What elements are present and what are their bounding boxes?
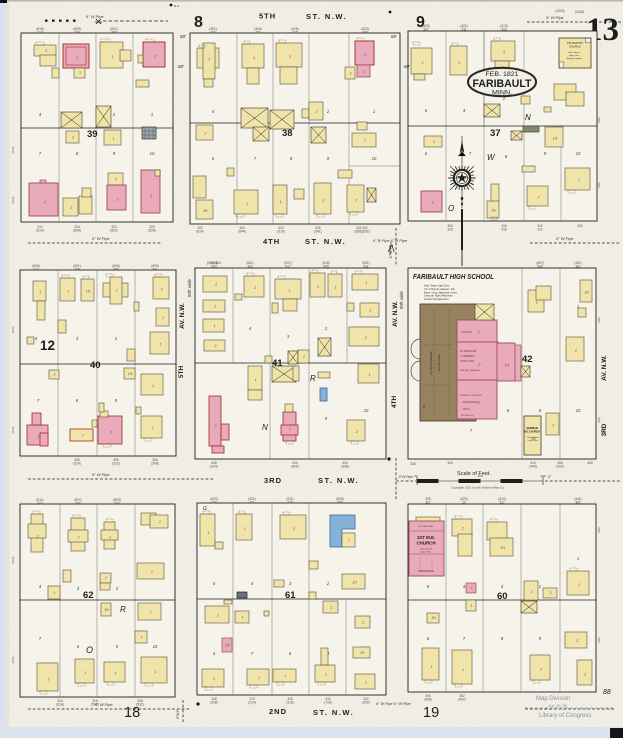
svg-text:301: 301 <box>152 268 158 272</box>
svg-text:6" W Pipe: 6" W Pipe <box>86 14 104 19</box>
svg-text:2: 2 <box>329 605 332 609</box>
svg-text:1: 1 <box>207 531 209 535</box>
svg-text:1: 1 <box>67 289 69 293</box>
svg-text:5TH: 5TH <box>259 12 276 21</box>
svg-text:Heat: Steam: Heat: Steam <box>420 548 432 551</box>
svg-text:1½: 1½ <box>203 209 208 213</box>
svg-text:2: 2 <box>75 56 78 60</box>
svg-text:324: 324 <box>577 224 583 228</box>
svg-text:SHOP: SHOP <box>463 409 470 411</box>
svg-text:AV. N.W.: AV. N.W. <box>601 355 608 381</box>
svg-text:(312): (312) <box>11 146 15 153</box>
svg-text:PARSONAGE: PARSONAGE <box>418 570 434 573</box>
svg-text:2: 2 <box>245 202 248 206</box>
svg-text:403: 403 <box>362 31 368 35</box>
svg-text:MUSIC ROOM: MUSIC ROOM <box>463 402 478 404</box>
svg-text:2: 2 <box>363 139 366 143</box>
svg-text:(542): (542) <box>91 703 98 707</box>
svg-text:80ft wide: 80ft wide <box>399 290 404 309</box>
svg-text:BOILER Rm: BOILER Rm <box>461 415 473 417</box>
svg-text:(60): (60) <box>597 317 601 322</box>
svg-text:1: 1 <box>430 665 432 669</box>
svg-text:AV. N.W.: AV. N.W. <box>392 301 399 327</box>
svg-text:D.H.: D.H. <box>174 4 180 8</box>
svg-text:1: 1 <box>214 324 216 328</box>
svg-text:1: 1 <box>54 591 56 595</box>
svg-text:4TH: 4TH <box>391 396 398 409</box>
svg-text:2: 2 <box>478 363 481 367</box>
svg-text:340': 340' <box>410 462 417 466</box>
svg-text:2: 2 <box>431 201 434 205</box>
svg-text:2: 2 <box>253 286 256 290</box>
svg-text:312: 312 <box>37 502 43 506</box>
svg-text:1½: 1½ <box>352 580 357 584</box>
svg-text:(60): (60) <box>597 637 601 642</box>
svg-text:407: 407 <box>337 501 343 505</box>
svg-text:1: 1 <box>365 281 367 285</box>
svg-text:421: 421 <box>255 31 261 35</box>
svg-text:1: 1 <box>373 109 375 114</box>
svg-text:40: 40 <box>90 360 101 371</box>
svg-text:2: 2 <box>150 570 153 574</box>
svg-text:Library of Congress: Library of Congress <box>539 713 591 719</box>
svg-text:(312): (312) <box>11 556 15 563</box>
svg-text:303: 303 <box>111 31 117 35</box>
svg-text:2: 2 <box>549 591 552 595</box>
svg-text:(312): (312) <box>11 326 15 333</box>
svg-text:60': 60' <box>178 64 184 69</box>
svg-text:2: 2 <box>36 535 39 539</box>
svg-text:1: 1 <box>255 378 257 382</box>
svg-text:10: 10 <box>153 644 158 649</box>
svg-text:8: 8 <box>194 14 203 31</box>
svg-text:313: 313 <box>37 31 43 35</box>
svg-text:2: 2 <box>551 424 554 428</box>
svg-text:(60): (60) <box>597 527 601 532</box>
svg-text:O: O <box>448 204 454 213</box>
svg-text:313: 313 <box>501 28 507 32</box>
svg-text:Lights: Elec.: Lights: Elec. <box>528 439 539 442</box>
svg-text:AV. N.W.: AV. N.W. <box>179 303 186 329</box>
svg-text:423: 423 <box>211 265 217 269</box>
svg-text:308: 308 <box>75 502 81 506</box>
svg-text:1: 1 <box>141 635 143 639</box>
svg-text:1½: 1½ <box>500 546 505 550</box>
svg-text:(402): (402) <box>458 698 465 702</box>
svg-text:CHURCH: CHURCH <box>569 45 580 49</box>
svg-text:1: 1 <box>154 670 156 674</box>
svg-text:60': 60' <box>404 64 410 69</box>
svg-text:2: 2 <box>574 349 577 353</box>
svg-text:1: 1 <box>280 200 282 204</box>
svg-text:2: 2 <box>347 539 350 543</box>
svg-text:2: 2 <box>457 61 460 65</box>
svg-text:2: 2 <box>461 527 464 531</box>
svg-text:2: 2 <box>369 309 372 313</box>
svg-text:2: 2 <box>37 434 40 438</box>
svg-text:1½: 1½ <box>86 290 91 294</box>
svg-text:1ST M.E.: 1ST M.E. <box>417 535 435 540</box>
svg-text:2: 2 <box>104 576 107 580</box>
svg-text:(510): (510) <box>277 230 284 234</box>
svg-text:427: 427 <box>211 501 217 505</box>
svg-text:2: 2 <box>315 110 318 114</box>
svg-text:O: O <box>86 645 93 655</box>
svg-text:1: 1 <box>335 285 337 289</box>
svg-text:2: 2 <box>116 198 119 202</box>
svg-text:37: 37 <box>490 128 501 139</box>
svg-text:3RD: 3RD <box>264 476 282 485</box>
svg-text:12: 12 <box>40 338 55 353</box>
svg-text:39: 39 <box>87 129 98 140</box>
svg-text:1: 1 <box>115 671 117 675</box>
svg-text:(541): (541) <box>314 230 321 234</box>
svg-text:& ASSEMBLY: & ASSEMBLY <box>460 355 475 358</box>
svg-text:1: 1 <box>109 536 111 540</box>
svg-text:2: 2 <box>349 71 352 75</box>
svg-text:5TH: 5TH <box>178 366 185 379</box>
svg-text:2: 2 <box>150 194 153 198</box>
svg-text:2: 2 <box>71 135 74 139</box>
svg-text:Lights: Elec: Lights: Elec <box>569 54 579 57</box>
svg-text:421: 421 <box>249 501 255 505</box>
svg-text:(400): (400) <box>556 465 563 469</box>
svg-text:6" W Pipe: 6" W Pipe <box>92 472 110 477</box>
svg-text:300: 300 <box>587 461 593 465</box>
svg-text:GERMAN: GERMAN <box>526 426 538 430</box>
svg-text:MANUAL TRAINING: MANUAL TRAINING <box>460 369 480 372</box>
svg-text:(216): (216) <box>286 701 293 705</box>
svg-text:FARIBAULT: FARIBAULT <box>473 78 532 90</box>
svg-text:2: 2 <box>354 199 357 203</box>
svg-text:50: 50 <box>414 474 418 478</box>
svg-text:TOILETS: TOILETS <box>461 330 472 334</box>
svg-text:1: 1 <box>462 668 464 672</box>
svg-text:415: 415 <box>292 31 298 35</box>
svg-text:2: 2 <box>214 283 217 287</box>
svg-text:(60): (60) <box>597 182 601 187</box>
svg-text:311: 311 <box>461 28 466 32</box>
svg-text:N: N <box>262 423 268 432</box>
svg-text:STUDY HALL: STUDY HALL <box>460 360 475 363</box>
svg-text:1: 1 <box>536 301 538 305</box>
svg-text:(214): (214) <box>248 701 255 705</box>
svg-text:(3403): (3403) <box>555 9 564 13</box>
svg-text:1: 1 <box>112 55 114 59</box>
svg-text:ST. N.W.: ST. N.W. <box>306 12 347 21</box>
svg-text:2: 2 <box>114 177 117 181</box>
svg-text:2: 2 <box>203 131 206 135</box>
svg-text:1: 1 <box>471 604 473 608</box>
svg-text:DOMESTIC SCIENCE: DOMESTIC SCIENCE <box>460 395 482 397</box>
svg-text:2: 2 <box>302 355 305 359</box>
svg-text:(409): (409) <box>291 465 298 469</box>
svg-text:2: 2 <box>149 611 152 615</box>
svg-text:60': 60' <box>391 34 397 39</box>
svg-text:61: 61 <box>285 590 296 601</box>
svg-text:100: 100 <box>477 474 482 478</box>
svg-text:1: 1 <box>151 112 153 117</box>
svg-text:1ST BAPTIST: 1ST BAPTIST <box>567 41 584 45</box>
svg-text:2: 2 <box>153 55 156 59</box>
svg-text:88: 88 <box>603 689 611 696</box>
svg-text:Lights: Elec.: Lights: Elec. <box>420 551 432 554</box>
svg-text:6" W Pipe: 6" W Pipe <box>92 236 110 241</box>
svg-text:1: 1 <box>116 289 118 293</box>
svg-text:2: 2 <box>77 535 80 539</box>
svg-text:(60): (60) <box>597 417 601 422</box>
svg-text:1½: 1½ <box>431 616 436 620</box>
svg-text:2: 2 <box>207 57 210 61</box>
svg-text:2: 2 <box>361 620 364 624</box>
svg-text:1: 1 <box>110 430 112 434</box>
svg-text:Copyright 1921 by the Sanborn: Copyright 1921 by the Sanborn Map Co. <box>451 486 505 490</box>
svg-text:(308): (308) <box>341 465 348 469</box>
svg-text:301: 301 <box>575 501 581 505</box>
svg-text:6"W Pipe: 6"W Pipe <box>399 475 413 479</box>
svg-text:2: 2 <box>539 668 542 672</box>
svg-text:2: 2 <box>69 206 72 210</box>
svg-text:2: 2 <box>537 195 540 199</box>
svg-text:2: 2 <box>216 614 219 618</box>
svg-text:10: 10 <box>576 151 581 156</box>
svg-text:318: 318 <box>447 228 453 232</box>
svg-text:2: 2 <box>81 433 84 437</box>
svg-text:2: 2 <box>321 199 324 203</box>
svg-text:408: 408 <box>74 268 80 272</box>
svg-text:1: 1 <box>363 69 365 73</box>
svg-text:(710): (710) <box>324 701 331 705</box>
svg-text:2: 2 <box>364 336 367 340</box>
svg-text:327: 327 <box>425 501 431 505</box>
svg-text:2ND: 2ND <box>269 707 287 716</box>
svg-text:2: 2 <box>288 427 291 431</box>
svg-text:18: 18 <box>124 705 140 721</box>
svg-text:2: 2 <box>577 179 580 183</box>
svg-text:2: 2 <box>53 373 56 377</box>
svg-text:62: 62 <box>83 590 94 601</box>
svg-text:2: 2 <box>288 55 291 59</box>
svg-text:1: 1 <box>161 288 163 292</box>
svg-text:(312): (312) <box>11 426 15 433</box>
svg-text:10: 10 <box>576 408 581 413</box>
svg-text:42: 42 <box>522 354 533 365</box>
svg-text:1½: 1½ <box>104 608 109 612</box>
svg-text:ST. N.W.: ST. N.W. <box>313 708 354 717</box>
svg-text:415: 415 <box>287 501 293 505</box>
svg-text:(208): (208) <box>210 701 217 705</box>
svg-text:GYMNASIUM: GYMNASIUM <box>460 349 476 353</box>
svg-text:38: 38 <box>282 128 293 139</box>
svg-text:6" W Pipe: 6" W Pipe <box>546 15 564 20</box>
svg-text:2: 2 <box>355 430 358 434</box>
svg-text:340: 340 <box>447 461 453 465</box>
svg-text:6"W.P.: 6"W.P. <box>176 709 180 719</box>
svg-text:2: 2 <box>583 673 586 677</box>
svg-text:R: R <box>310 374 316 383</box>
svg-text:411: 411 <box>363 265 368 269</box>
svg-text:1: 1 <box>85 671 87 675</box>
svg-text:4TH: 4TH <box>263 237 280 246</box>
svg-text:2: 2 <box>151 384 154 388</box>
svg-text:For Floor Construction: For Floor Construction <box>430 350 433 374</box>
svg-text:JUL 29 '35: JUL 29 '35 <box>548 703 568 708</box>
svg-text:1: 1 <box>288 288 290 292</box>
svg-text:412: 412 <box>537 228 543 232</box>
svg-text:309: 309 <box>74 31 80 35</box>
svg-text:2: 2 <box>324 673 327 677</box>
svg-text:301: 301 <box>575 265 581 269</box>
svg-text:Heat: Stoves: Heat: Stoves <box>527 436 538 439</box>
svg-text:60: 60 <box>497 591 508 602</box>
svg-text:1: 1 <box>578 583 580 587</box>
svg-text:2: 2 <box>151 427 154 431</box>
svg-text:2: 2 <box>421 61 424 65</box>
svg-text:See Plan Below: See Plan Below <box>438 354 441 371</box>
svg-text:427: 427 <box>210 31 216 35</box>
svg-text:(202): (202) <box>362 701 369 705</box>
svg-text:2: 2 <box>575 639 578 643</box>
svg-text:20: 20 <box>462 501 466 505</box>
svg-text:2: 2 <box>432 140 435 144</box>
svg-text:1: 1 <box>244 527 246 531</box>
svg-text:2: 2 <box>502 50 505 54</box>
svg-text:80': 80' <box>180 34 186 39</box>
svg-text:2: 2 <box>477 331 480 335</box>
svg-text:1½: 1½ <box>584 291 589 295</box>
svg-text:(314): (314) <box>73 462 80 466</box>
svg-text:FARIBAULT HIGH SCHOOL: FARIBAULT HIGH SCHOOL <box>413 274 494 281</box>
svg-text:2: 2 <box>161 316 164 320</box>
svg-text:1: 1 <box>79 71 81 75</box>
svg-text:FEB. 1821: FEB. 1821 <box>486 71 520 78</box>
svg-text:(508)(502): (508)(502) <box>355 230 370 234</box>
svg-text:(312): (312) <box>11 656 15 663</box>
svg-text:421: 421 <box>247 265 253 269</box>
svg-text:(308): (308) <box>151 462 158 466</box>
svg-text:CHURCH: CHURCH <box>416 541 435 546</box>
svg-text:2: 2 <box>47 677 50 681</box>
svg-text:STY BALCONY: STY BALCONY <box>418 525 434 528</box>
svg-text:1½: 1½ <box>360 651 365 655</box>
svg-text:M.E.CHURCH: M.E.CHURCH <box>524 430 541 434</box>
svg-text:2: 2 <box>44 49 47 53</box>
svg-text:80ft wide: 80ft wide <box>187 278 192 297</box>
svg-text:(312): (312) <box>11 196 15 203</box>
svg-text:327: 327 <box>423 28 429 32</box>
svg-text:(408): (408) <box>424 698 431 702</box>
svg-text:Seating Capacity: Seating Capacity <box>566 57 581 60</box>
svg-text:1½: 1½ <box>553 136 558 140</box>
svg-text:2: 2 <box>364 53 367 57</box>
svg-text:1: 1 <box>369 373 371 377</box>
svg-text:2: 2 <box>158 520 161 524</box>
svg-text:ST. N.W.: ST. N.W. <box>305 237 346 246</box>
svg-text:417: 417 <box>33 268 39 272</box>
svg-text:6" W Pipe 6" W Pipe: 6" W Pipe 6" W Pipe <box>376 702 411 706</box>
svg-text:(602): (602) <box>110 229 117 233</box>
svg-text:19: 19 <box>423 705 439 721</box>
svg-text:(502): (502) <box>136 703 143 707</box>
svg-text:417: 417 <box>285 265 291 269</box>
svg-text:R: R <box>120 605 126 614</box>
svg-text:1½: 1½ <box>128 372 133 376</box>
svg-text:Heat: Steam: Heat: Steam <box>568 51 579 54</box>
svg-text:2: 2 <box>212 677 215 681</box>
svg-text:302: 302 <box>114 502 120 506</box>
svg-text:N: N <box>525 113 531 122</box>
svg-text:2: 2 <box>214 344 217 348</box>
svg-text:(312): (312) <box>112 462 119 466</box>
svg-text:(414): (414) <box>210 465 217 469</box>
svg-text:2: 2 <box>214 424 217 428</box>
svg-text:10: 10 <box>364 408 369 413</box>
svg-text:MINN.: MINN. <box>492 91 512 97</box>
svg-text:1½: 1½ <box>491 209 496 213</box>
svg-text:405: 405 <box>323 265 329 269</box>
svg-text:2: 2 <box>364 680 367 684</box>
svg-text:308: 308 <box>113 268 119 272</box>
svg-text:2: 2 <box>316 285 319 289</box>
svg-text:(408): (408) <box>529 465 536 469</box>
svg-text:2: 2 <box>470 586 473 590</box>
svg-text:1: 1 <box>565 91 567 95</box>
svg-text:317: 317 <box>499 501 505 505</box>
svg-text:309: 309 <box>537 265 543 269</box>
svg-text:Scale of Feet.: Scale of Feet. <box>457 471 491 477</box>
svg-text:1: 1 <box>242 615 244 619</box>
svg-text:2: 2 <box>292 527 295 531</box>
svg-text:ST. N.W.: ST. N.W. <box>318 476 359 485</box>
svg-text:2: 2 <box>530 590 533 594</box>
svg-text:(614): (614) <box>36 229 43 233</box>
svg-text:10: 10 <box>150 151 155 156</box>
svg-text:1: 1 <box>285 674 287 678</box>
svg-text:1: 1 <box>39 290 41 294</box>
svg-text:6" W Pipe: 6" W Pipe <box>389 242 393 259</box>
svg-text:416: 416 <box>501 228 507 232</box>
svg-text:(3402): (3402) <box>575 10 584 14</box>
svg-text:1: 1 <box>160 343 162 347</box>
svg-text:Service Help (Elevator): Service Help (Elevator) <box>424 298 449 301</box>
svg-text:Map Division: Map Division <box>536 696 570 702</box>
svg-text:1½: 1½ <box>505 364 510 368</box>
svg-text:10: 10 <box>372 156 377 161</box>
svg-text:(614): (614) <box>196 230 203 234</box>
svg-text:1: 1 <box>577 556 579 561</box>
svg-text:2: 2 <box>213 304 216 308</box>
svg-text:200: 200 <box>540 474 545 478</box>
svg-text:2: 2 <box>257 676 260 680</box>
svg-text:(608): (608) <box>73 229 80 233</box>
svg-text:3RD: 3RD <box>601 423 608 436</box>
svg-text:1: 1 <box>112 136 114 140</box>
svg-text:1½: 1½ <box>225 644 230 648</box>
svg-text:(528): (528) <box>148 229 155 233</box>
svg-text:1: 1 <box>253 56 255 60</box>
svg-text:6" W Pipe: 6" W Pipe <box>556 236 574 241</box>
svg-text:(644): (644) <box>238 230 245 234</box>
svg-text:2: 2 <box>43 200 46 204</box>
svg-text:(60): (60) <box>597 117 601 122</box>
svg-text:(614): (614) <box>56 703 63 707</box>
